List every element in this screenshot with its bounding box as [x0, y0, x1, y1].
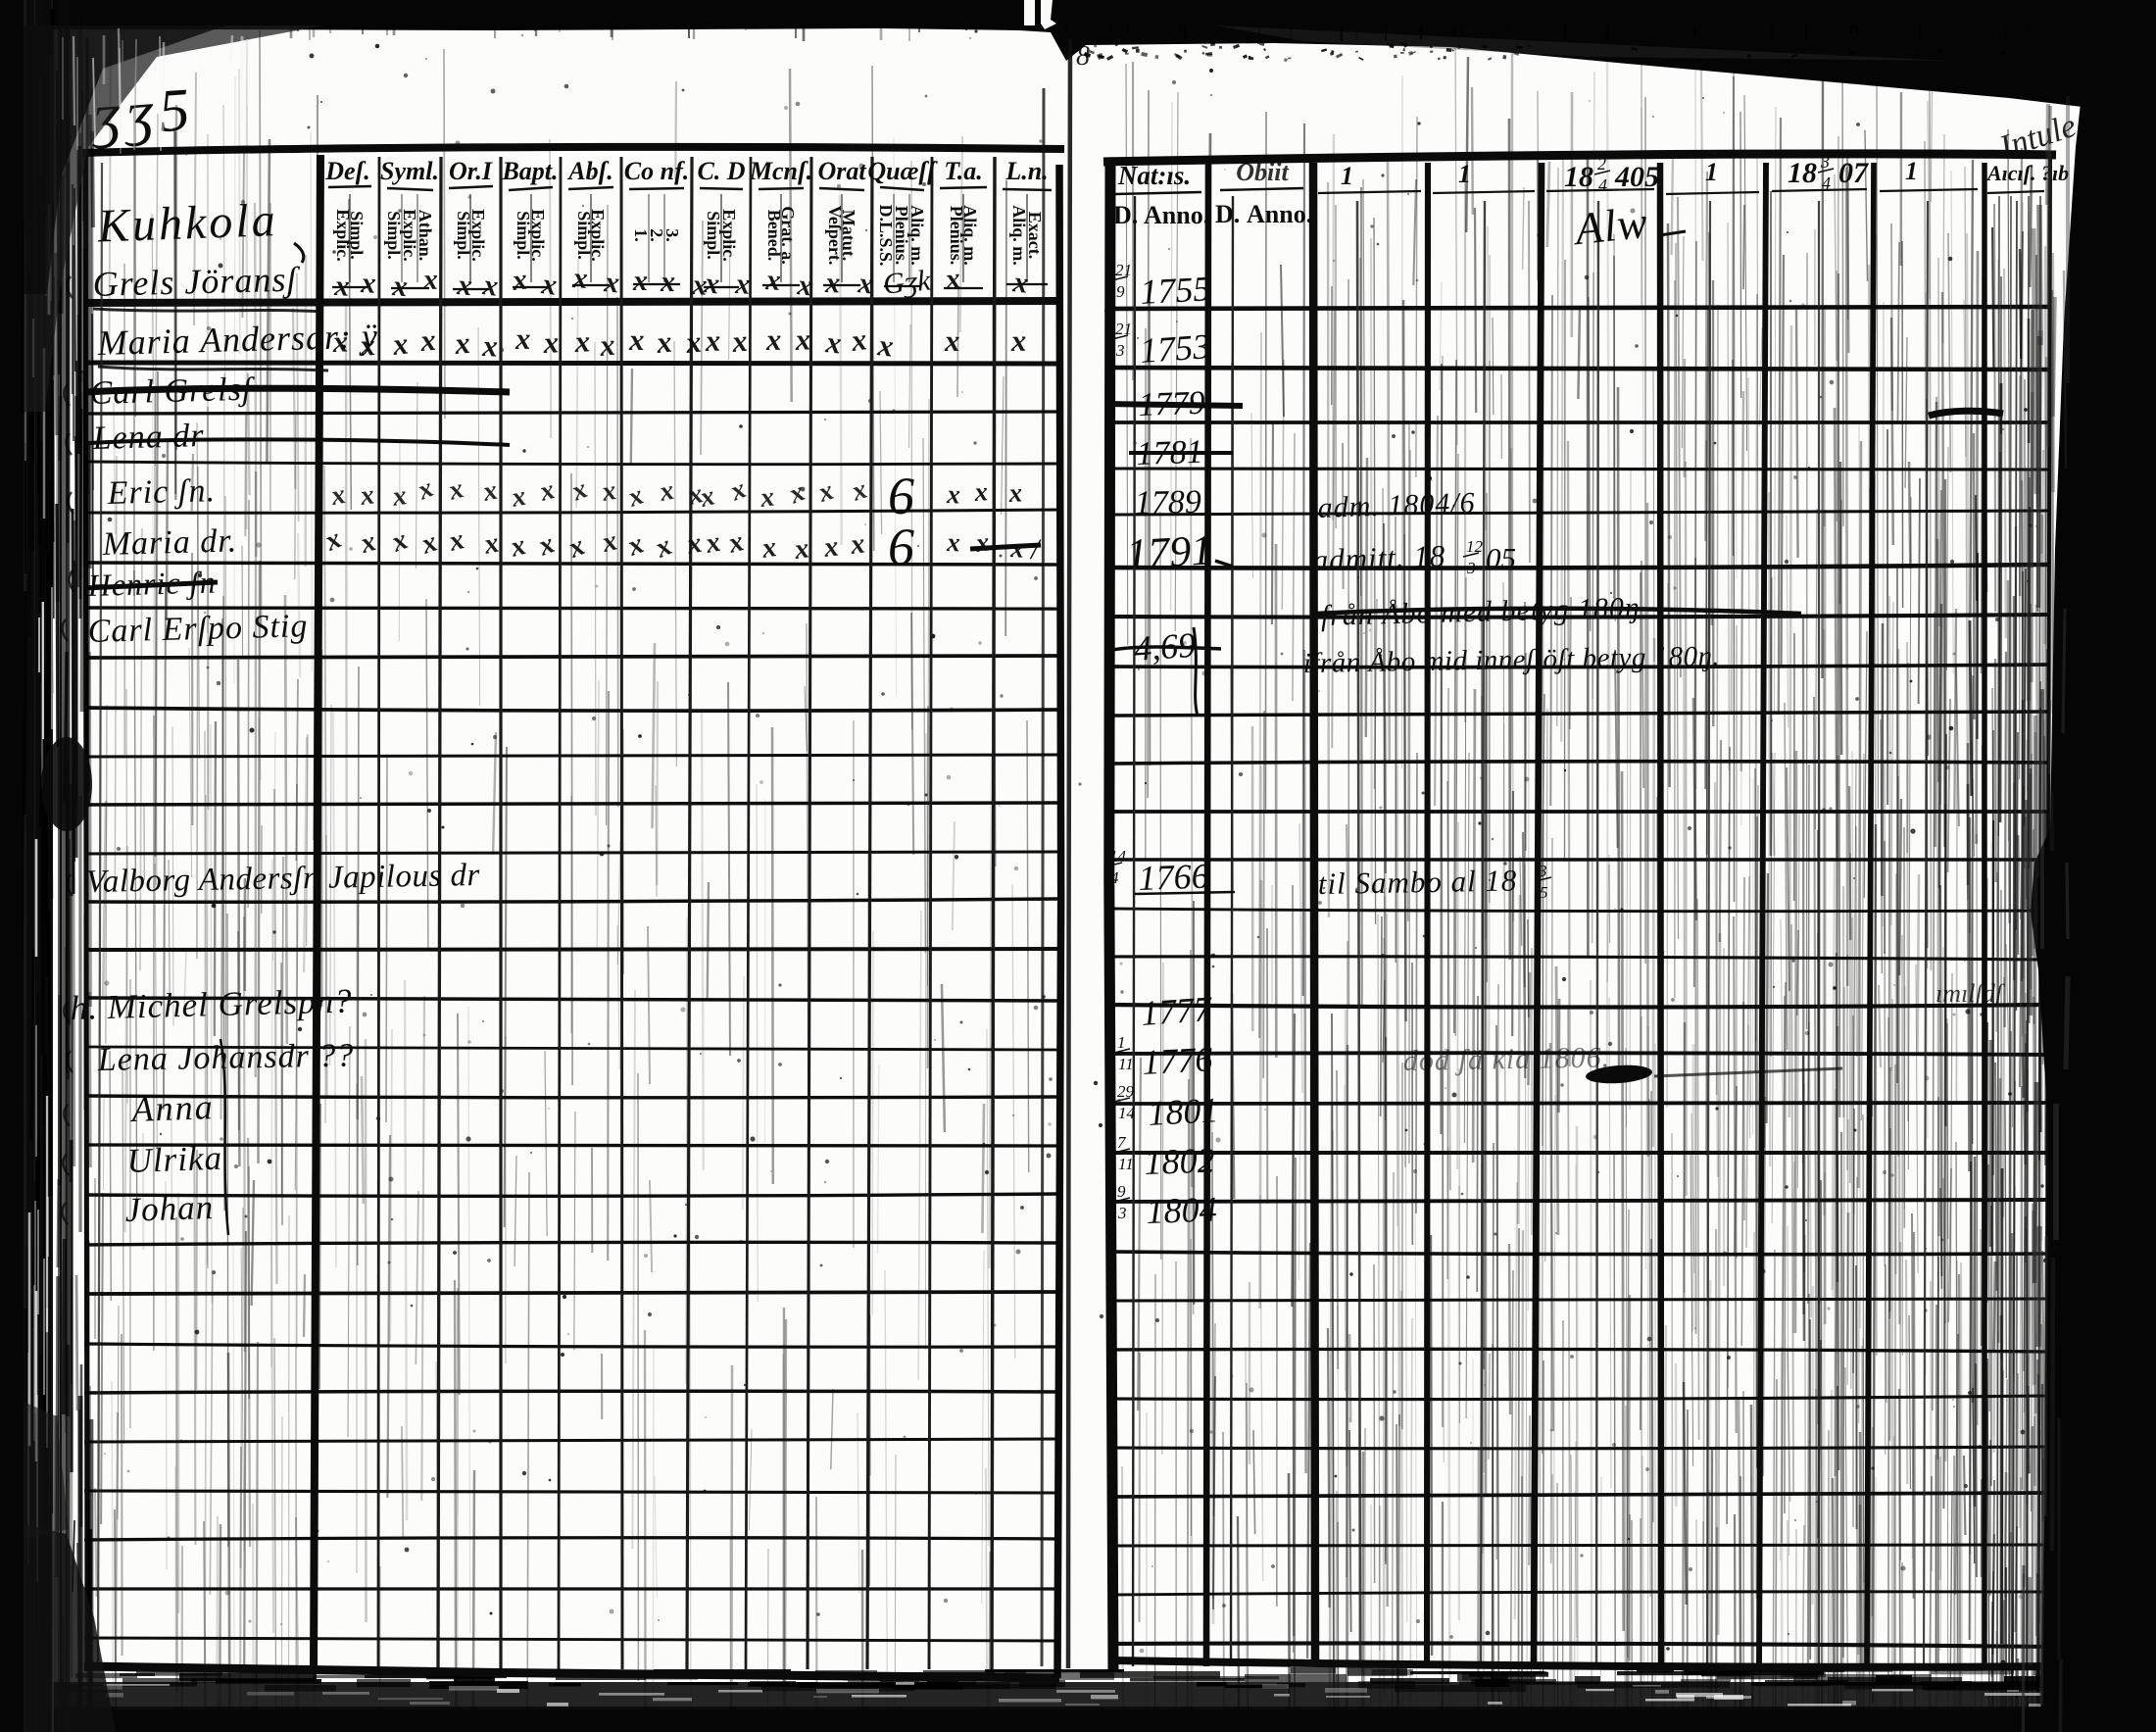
svg-text:3: 3: [1466, 559, 1476, 577]
svg-text:C. D: C. D: [697, 157, 745, 185]
svg-text:Lena Johansdr ??: Lena Johansdr ??: [96, 1037, 354, 1078]
svg-text:1777: 1777: [1140, 989, 1215, 1033]
svg-text:3: 3: [1117, 1204, 1127, 1222]
svg-text:x: x: [390, 270, 409, 303]
svg-text:Syml.: Syml.: [380, 157, 439, 185]
svg-text:x: x: [632, 265, 648, 297]
svg-text:1: 1: [1458, 160, 1471, 188]
svg-text:Anno.: Anno.: [1247, 200, 1312, 228]
svg-text:Co nf.: Co nf.: [624, 157, 689, 185]
svg-text:x: x: [573, 323, 591, 359]
svg-text:1: 1: [1705, 158, 1718, 186]
svg-text:x: x: [360, 267, 377, 300]
svg-text:Nat:ıs.: Nat:ıs.: [1117, 161, 1191, 190]
svg-text:Valborg Andersʃn Japilous dr: Valborg Andersʃn Japilous dr: [86, 858, 481, 900]
svg-text:6: 6: [888, 467, 914, 525]
svg-text:Abſ.: Abſ.: [566, 157, 613, 185]
svg-text:Mcnſ.: Mcnſ.: [749, 157, 812, 185]
svg-text:x: x: [421, 264, 438, 296]
svg-text:Anna: Anna: [129, 1087, 215, 1129]
svg-text:x: x: [1009, 323, 1026, 358]
svg-text:1804: 1804: [1146, 1190, 1217, 1231]
svg-text:1776: 1776: [1141, 1039, 1213, 1082]
svg-text:x: x: [764, 264, 782, 297]
svg-text:Carl Erſpo Stig: Carl Erſpo Stig: [87, 608, 309, 650]
svg-text:1789: 1789: [1134, 484, 1201, 521]
svg-text:til Sambo al 18: til Sambo al 18: [1318, 863, 1518, 901]
svg-text:x: x: [455, 269, 473, 302]
svg-text:x: x: [946, 479, 961, 510]
svg-text:x: x: [683, 324, 703, 360]
svg-text:adm. 1804/6: adm. 1804/6: [1317, 486, 1476, 524]
svg-text:3: 3: [1820, 152, 1830, 172]
svg-text:Grels Jöransʃ: Grels Jöransʃ: [92, 259, 302, 304]
svg-text:07: 07: [1838, 157, 1869, 189]
svg-text:död ʃä ĸia 1806.: död ʃä ĸia 1806.: [1403, 1041, 1611, 1077]
svg-text:Aıcıſ. ?ıb: Aıcıſ. ?ıb: [1985, 161, 2069, 185]
svg-text:D.: D.: [1113, 201, 1138, 229]
svg-text:6: 6: [888, 518, 914, 576]
svg-text:1: 1: [1341, 162, 1353, 190]
svg-text:1791: 1791: [1125, 525, 1213, 578]
svg-text:1801: 1801: [1147, 1090, 1219, 1133]
svg-text:3: 3: [1538, 862, 1547, 880]
svg-text:x: x: [704, 323, 721, 358]
svg-text:Eric ʃn.: Eric ʃn.: [106, 472, 216, 512]
svg-text:29: 29: [1117, 1082, 1135, 1101]
svg-text:11: 11: [1118, 1155, 1134, 1173]
svg-text:x: x: [660, 266, 675, 298]
svg-text:1: 1: [1117, 1033, 1126, 1052]
svg-text:admitt. 18: admitt. 18: [1312, 538, 1446, 577]
svg-text:x: x: [765, 322, 782, 357]
svg-text:9: 9: [1117, 1182, 1126, 1201]
svg-text:3: 3: [1115, 341, 1125, 360]
svg-text:2: 2: [1597, 154, 1606, 173]
svg-text:Orat: Orat: [817, 157, 866, 185]
svg-text:ımılʃdʃ: ımılʃdʃ: [1935, 979, 2006, 1008]
svg-text:x: x: [729, 323, 749, 359]
svg-text:x: x: [481, 328, 499, 364]
svg-text:x: x: [333, 270, 351, 303]
svg-text:x: x: [794, 322, 811, 357]
svg-text:14: 14: [1118, 1104, 1136, 1122]
svg-text:x: x: [628, 322, 645, 357]
svg-text:Athan.: Athan.: [416, 210, 435, 262]
svg-text:Obiit: Obiit: [1236, 158, 1289, 186]
svg-text:Quæſſ: Quæſſ: [867, 157, 938, 185]
svg-text:11: 11: [1118, 1055, 1134, 1073]
svg-text:Gʒk: Gʒk: [882, 264, 933, 300]
svg-text:x: x: [598, 327, 617, 363]
svg-text:Deſ.: Deſ.: [324, 157, 369, 185]
svg-text:x: x: [824, 267, 841, 299]
svg-text:12: 12: [1466, 537, 1484, 556]
svg-text:Explic.: Explic.: [719, 209, 739, 262]
svg-text:Alw: Alw: [1570, 197, 1650, 255]
svg-text:1: 1: [1905, 157, 1918, 185]
svg-text:L.n.: L.n.: [1004, 157, 1048, 185]
svg-text:4: 4: [1110, 868, 1119, 887]
svg-text:x: x: [418, 322, 437, 358]
svg-text:x: x: [734, 268, 752, 301]
svg-text:21: 21: [1115, 320, 1132, 338]
svg-text:1753: 1753: [1139, 326, 1212, 371]
svg-text:x: x: [973, 476, 989, 507]
svg-text:21: 21: [1115, 261, 1132, 279]
svg-text:x: x: [514, 322, 531, 356]
svg-text:Explic.: Explic.: [468, 209, 488, 262]
svg-text:Or.I: Or.I: [449, 157, 493, 185]
svg-text:Bapt.: Bapt.: [501, 157, 558, 185]
svg-text:4: 4: [1598, 175, 1607, 195]
svg-text:Maria dr.: Maria dr.: [101, 522, 237, 563]
svg-text:Johan: Johan: [124, 1188, 215, 1229]
svg-text:3.: 3.: [662, 228, 682, 242]
svg-text:18: 18: [1564, 161, 1593, 193]
svg-text:Exact.: Exact.: [1025, 212, 1045, 260]
svg-text:T.a.: T.a.: [944, 157, 983, 185]
svg-text:14: 14: [1109, 847, 1127, 866]
svg-text:Anno.: Anno.: [1144, 201, 1209, 229]
svg-text:x: x: [654, 324, 673, 360]
svg-text:1802: 1802: [1144, 1141, 1215, 1182]
svg-text:x: x: [453, 325, 471, 361]
svg-text:D.: D.: [1215, 200, 1240, 228]
svg-text:Aliq. m.: Aliq. m.: [907, 205, 927, 266]
svg-text:1755: 1755: [1139, 269, 1211, 312]
svg-text:9: 9: [1116, 282, 1125, 301]
svg-text:x: x: [571, 262, 589, 295]
svg-text:05: 05: [1486, 541, 1516, 575]
svg-text:x: x: [1007, 477, 1023, 508]
svg-text:x: x: [944, 323, 960, 358]
svg-text:h. Michel Grelspn?: h. Michel Grelspn?: [70, 981, 353, 1027]
svg-text:Kuhkola: Kuhkola: [96, 194, 278, 252]
svg-text:x: x: [946, 527, 960, 557]
svg-text:x: x: [331, 323, 349, 359]
svg-text:x: x: [358, 327, 376, 363]
svg-text:5: 5: [1540, 883, 1548, 902]
svg-text:Ulrika: Ulrika: [126, 1139, 223, 1180]
svg-text:18: 18: [1788, 157, 1817, 189]
svg-text:Lena dr: Lena dr: [91, 418, 205, 457]
svg-text:x: x: [542, 324, 560, 360]
